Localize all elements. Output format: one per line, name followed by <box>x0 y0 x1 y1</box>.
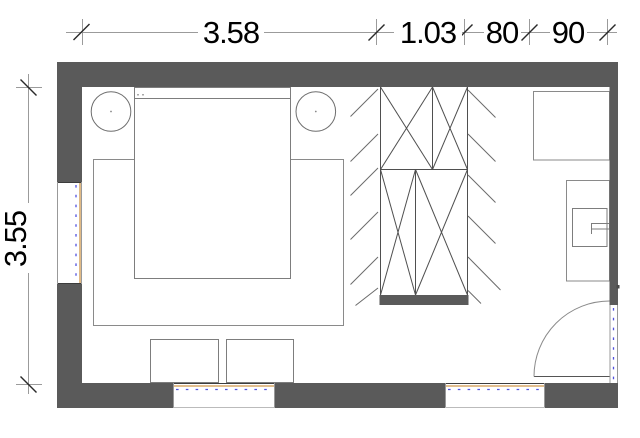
svg-text:1.03: 1.03 <box>400 15 456 50</box>
svg-text:90: 90 <box>552 15 585 50</box>
svg-text:80: 80 <box>486 15 519 50</box>
svg-text:3.58: 3.58 <box>203 15 259 50</box>
svg-text:3.55: 3.55 <box>0 211 33 267</box>
